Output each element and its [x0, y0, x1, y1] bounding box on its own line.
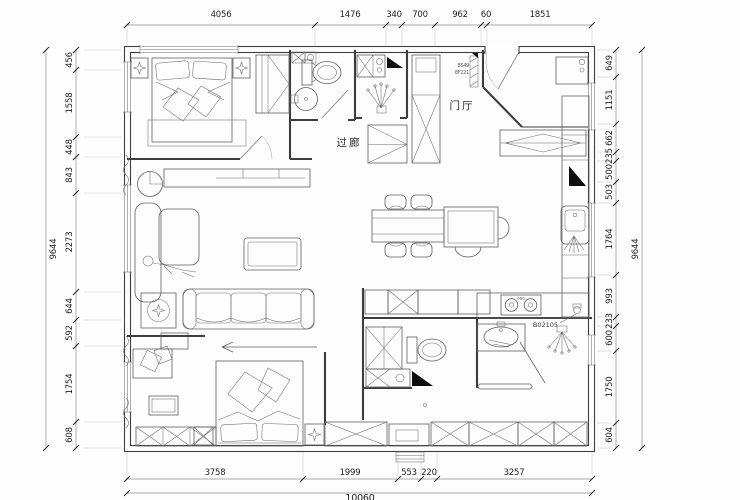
toilet-icon — [407, 337, 446, 363]
washbasin-icon — [477, 322, 525, 351]
kitchen-island — [444, 207, 509, 257]
outer-walls — [123, 45, 596, 452]
master-bedroom — [124, 55, 290, 195]
shoe-cabinet — [500, 130, 586, 156]
dining-room — [365, 195, 509, 314]
dim-total-bottom: 10060 — [345, 493, 374, 500]
laundry-room — [357, 55, 403, 113]
dim-label: 600 — [605, 330, 615, 346]
double-bed — [216, 361, 303, 446]
dim-label: 662 — [605, 130, 615, 146]
gas-meter-icon — [560, 304, 581, 323]
entry-door-leaf — [498, 52, 519, 89]
washbasin-icon — [291, 88, 318, 111]
second-bathroom — [366, 322, 576, 407]
dim-label: 1851 — [530, 10, 551, 20]
chair — [385, 243, 406, 257]
kitchen-sink-icon — [561, 206, 589, 253]
dim-label: 233 — [605, 313, 615, 329]
desk — [133, 346, 172, 378]
chair — [411, 243, 432, 257]
dim-label: 3758 — [205, 468, 226, 478]
wardrobe — [256, 55, 289, 113]
sideboard-row — [365, 290, 490, 314]
corridor-cabinets — [368, 55, 440, 163]
chair — [140, 350, 161, 371]
dim-label: 700 — [412, 10, 428, 20]
window-icon — [123, 45, 596, 412]
dim-label: 340 — [386, 10, 402, 20]
dim-label: 1558 — [65, 93, 75, 114]
dim-label: 1476 — [340, 10, 361, 20]
washing-machine-icon — [357, 55, 385, 77]
armchair — [135, 203, 199, 302]
dim-label: 4056 — [211, 10, 232, 20]
dim-label: 503 — [605, 184, 615, 200]
person-figure — [143, 256, 153, 266]
dim-label: 456 — [65, 52, 75, 68]
marker-triangle-icon — [569, 166, 586, 186]
dim-label: 235 — [605, 148, 615, 164]
sofa — [183, 289, 314, 329]
dim-label: 1999 — [340, 468, 361, 478]
direction-arrow-icon — [222, 342, 317, 352]
dim-label: 3257 — [504, 468, 525, 478]
chair — [411, 195, 432, 209]
dim-label: 60 — [481, 10, 491, 20]
dim-label: 1750 — [605, 377, 615, 398]
dining-table — [372, 195, 444, 257]
shower-threshold — [478, 384, 532, 389]
marker-triangle-icon — [387, 57, 403, 68]
kitchen-counter — [562, 96, 589, 317]
dim-label: 1754 — [65, 374, 75, 395]
plant-icon — [138, 172, 163, 197]
floor-plan-page: 4056 1476 340 700 962 60 1851 3758 1999 … — [0, 0, 740, 500]
dim-label: 448 — [65, 139, 75, 155]
dim-total-left: 9644 — [49, 239, 59, 260]
lamp-icon — [153, 305, 165, 317]
room-label-corridor: 过廊 — [337, 136, 362, 149]
plant-icon — [367, 83, 395, 113]
appliance-tag: B02105 — [533, 321, 558, 329]
dim-label: 1764 — [605, 229, 615, 250]
gas-stove-icon — [501, 295, 541, 315]
room-label-foyer: 门厅 — [450, 99, 475, 112]
lamp-icon — [309, 429, 321, 441]
master-bathroom — [291, 52, 341, 111]
dim-total-right: 9644 — [631, 239, 641, 260]
dim-label: 962 — [452, 10, 468, 20]
lamp-icon — [134, 62, 146, 74]
chair — [385, 195, 406, 209]
shower-glass — [520, 342, 545, 383]
second-bedroom — [124, 333, 325, 446]
entry-door-elevation — [470, 53, 478, 87]
counter-south — [477, 293, 589, 318]
door-tag: 8549 — [457, 63, 469, 69]
marker-triangle-icon — [412, 371, 433, 386]
small-cabinet — [366, 369, 410, 387]
interior-walls — [127, 50, 592, 425]
stool — [498, 217, 509, 239]
shower-icon — [548, 326, 576, 354]
outdoor-step — [396, 452, 424, 462]
dimension-lines — [43, 22, 645, 496]
door-tag: 8F221 — [455, 70, 469, 76]
fridge-icon — [556, 57, 588, 84]
living-room — [135, 169, 314, 329]
dim-label: 592 — [65, 325, 75, 341]
stool — [455, 247, 481, 257]
foyer: 8549 8F221 — [455, 45, 586, 186]
dim-label: 993 — [605, 288, 615, 304]
dim-label: 220 — [421, 468, 437, 478]
dim-label: 500 — [605, 164, 615, 180]
dim-label: 1151 — [605, 90, 615, 111]
tv-cabinet — [164, 169, 310, 187]
hall-cabinet — [368, 125, 407, 163]
floor-plan-canvas: 4056 1476 340 700 962 60 1851 3758 1999 … — [0, 0, 740, 500]
toilet-icon — [302, 60, 341, 85]
dim-label: 604 — [605, 427, 615, 443]
lamp-icon — [236, 62, 248, 74]
dim-label: 608 — [65, 427, 75, 443]
dim-label: 843 — [65, 167, 75, 183]
bottom-cabinets — [325, 422, 587, 462]
dim-label: 2273 — [65, 232, 75, 253]
dim-label: 644 — [65, 298, 75, 314]
coffee-table — [244, 238, 301, 270]
double-bed — [148, 58, 246, 146]
dim-label: 649 — [605, 55, 615, 71]
dimension-labels: 4056 1476 340 700 962 60 1851 3758 1999 … — [49, 10, 641, 500]
dim-label: 553 — [401, 468, 417, 478]
